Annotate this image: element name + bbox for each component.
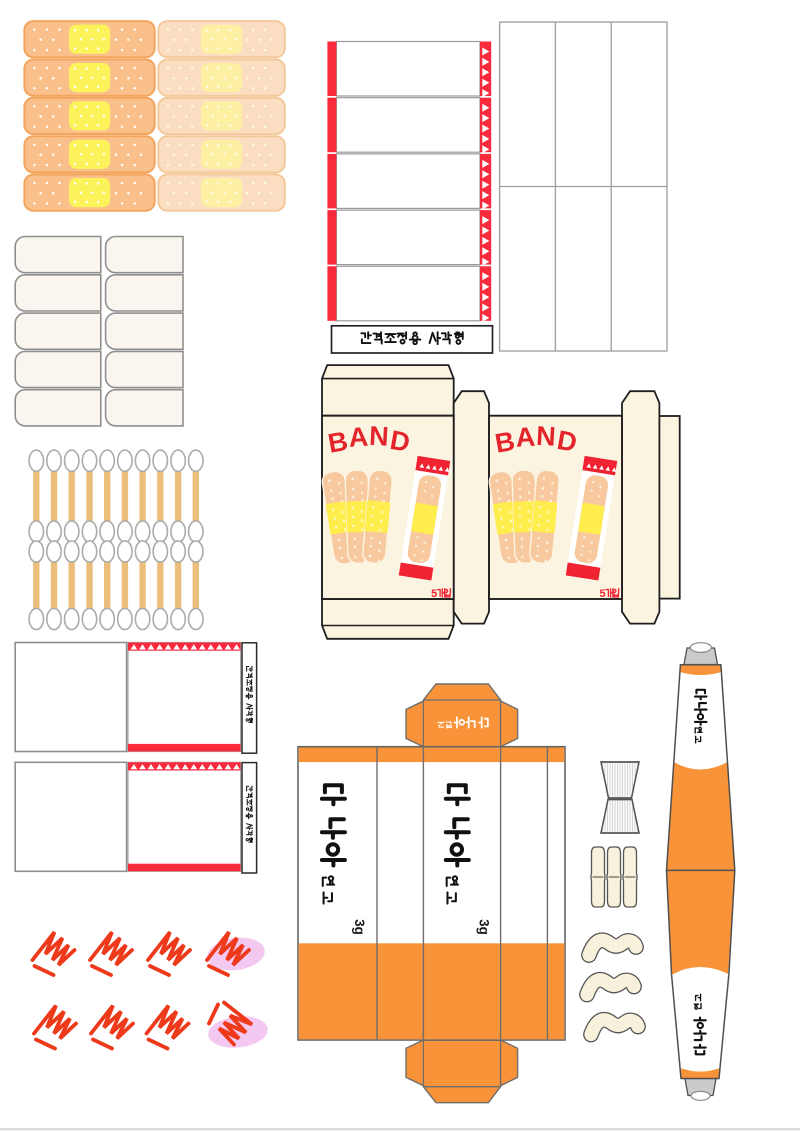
svg-text:3g: 3g	[477, 919, 492, 935]
svg-text:N: N	[535, 421, 556, 452]
svg-text:3g: 3g	[352, 919, 367, 935]
svg-text:5: 5	[599, 588, 605, 600]
svg-text:A: A	[515, 422, 537, 453]
svg-text:N: N	[368, 421, 389, 452]
svg-text:A: A	[348, 422, 370, 453]
svg-text:5: 5	[431, 588, 437, 600]
